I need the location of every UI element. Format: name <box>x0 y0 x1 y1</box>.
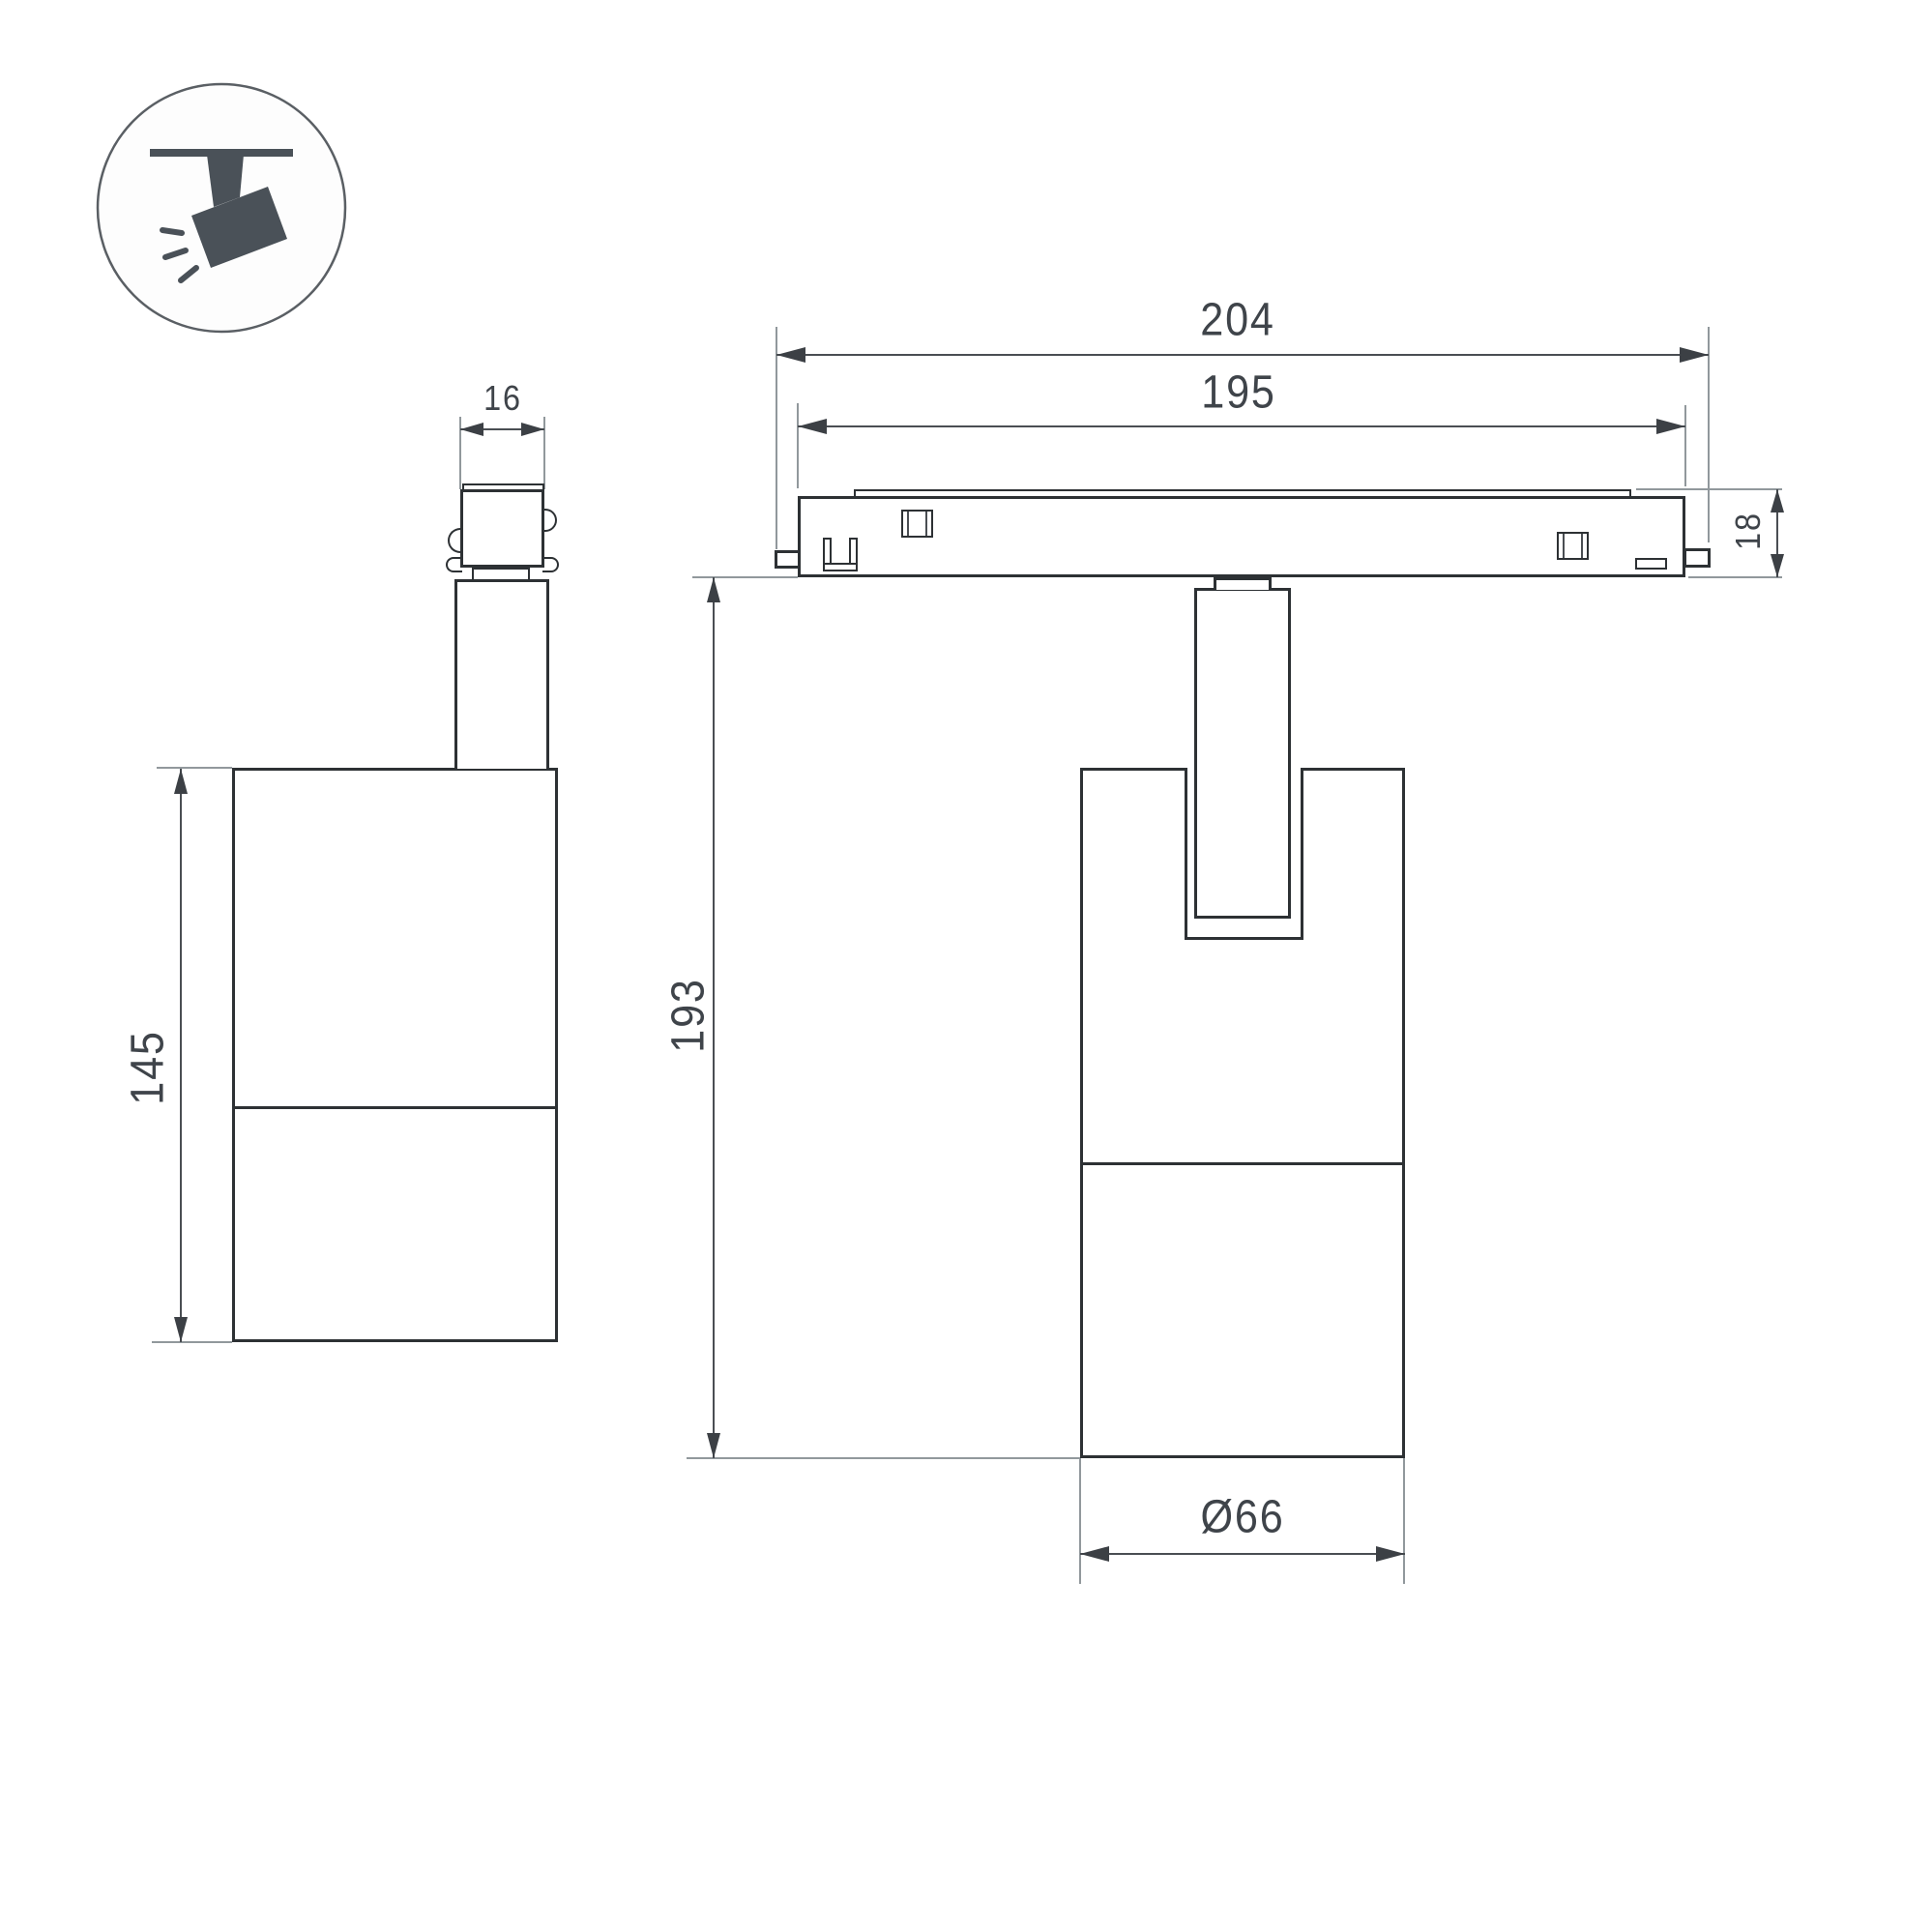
front-stem <box>1194 588 1291 919</box>
dim145-extension-bottom <box>152 1341 232 1343</box>
side-connector-ear-lower-right <box>542 557 559 572</box>
dim18-extension-bottom <box>1688 576 1782 578</box>
dim195-extension-right <box>1684 405 1686 486</box>
side-body-seam-line <box>234 1106 556 1109</box>
dim145-arrow-up <box>174 769 188 794</box>
track-spotlight-icon <box>95 81 348 335</box>
dim16-label: 16 <box>483 378 522 419</box>
track-slot <box>1635 558 1667 570</box>
dim204-line <box>776 354 1709 356</box>
dim195-arrow-left <box>798 419 827 434</box>
dimension-drawing: 16 145 204 195 18 <box>0 0 1932 1932</box>
track-nub-right <box>1683 548 1711 568</box>
dim204-label: 204 <box>1200 294 1274 347</box>
dim18-extension-top <box>1636 488 1782 490</box>
dim18-label: 18 <box>1728 512 1769 550</box>
front-yoke-bottom <box>1185 937 1303 940</box>
dim193-label: 193 <box>662 978 716 1052</box>
track-clip-b-inner-right <box>1581 534 1583 558</box>
dim145-line <box>180 769 182 1342</box>
dim195-label: 195 <box>1201 366 1275 420</box>
dim66-extension-right <box>1403 1458 1405 1584</box>
dim18-arrow-down <box>1771 554 1784 577</box>
track-nub-left <box>775 550 801 569</box>
dim16-arrow-right <box>521 423 544 436</box>
dim66-extension-left <box>1079 1458 1081 1584</box>
dim66-arrow-left <box>1080 1546 1109 1562</box>
dim18-arrow-up <box>1771 489 1784 512</box>
dim195-arrow-right <box>1656 419 1685 434</box>
track-clip-b-inner-left <box>1563 534 1565 558</box>
dim145-arrow-down <box>174 1317 188 1342</box>
front-body-top-edge-right <box>1301 768 1405 771</box>
side-stem <box>454 579 549 769</box>
front-yoke-wall-left <box>1185 768 1187 940</box>
dim193-arrow-up <box>707 577 720 602</box>
dim193-arrow-down <box>707 1433 720 1458</box>
front-yoke-wall-right <box>1301 768 1303 940</box>
front-body-seam-line <box>1082 1162 1403 1165</box>
dim145-extension-top <box>157 767 232 769</box>
front-body-top-edge-left <box>1080 768 1187 771</box>
track-clip-a <box>901 510 933 538</box>
side-body <box>232 768 558 1342</box>
dim204-arrow-right <box>1680 347 1709 363</box>
dim66-label: Ø66 <box>1200 1491 1284 1544</box>
track-u-clip-bottom <box>823 563 858 571</box>
dim204-arrow-left <box>776 347 805 363</box>
dim193-extension-bottom <box>687 1457 1080 1459</box>
track-clip-b <box>1557 532 1589 560</box>
front-stem-collar <box>1214 577 1272 590</box>
side-connector-box <box>460 489 544 568</box>
dim145-label: 145 <box>122 1030 175 1104</box>
track-clip-a-inner-left <box>907 512 909 536</box>
dim66-arrow-right <box>1376 1546 1405 1562</box>
dim16-arrow-left <box>460 423 483 436</box>
dim66-line <box>1080 1553 1405 1555</box>
track-clip-a-inner-right <box>925 512 927 536</box>
dim195-extension-left <box>797 403 799 488</box>
side-connector-ear-upper-right <box>542 509 557 532</box>
dim195-line <box>798 425 1685 427</box>
